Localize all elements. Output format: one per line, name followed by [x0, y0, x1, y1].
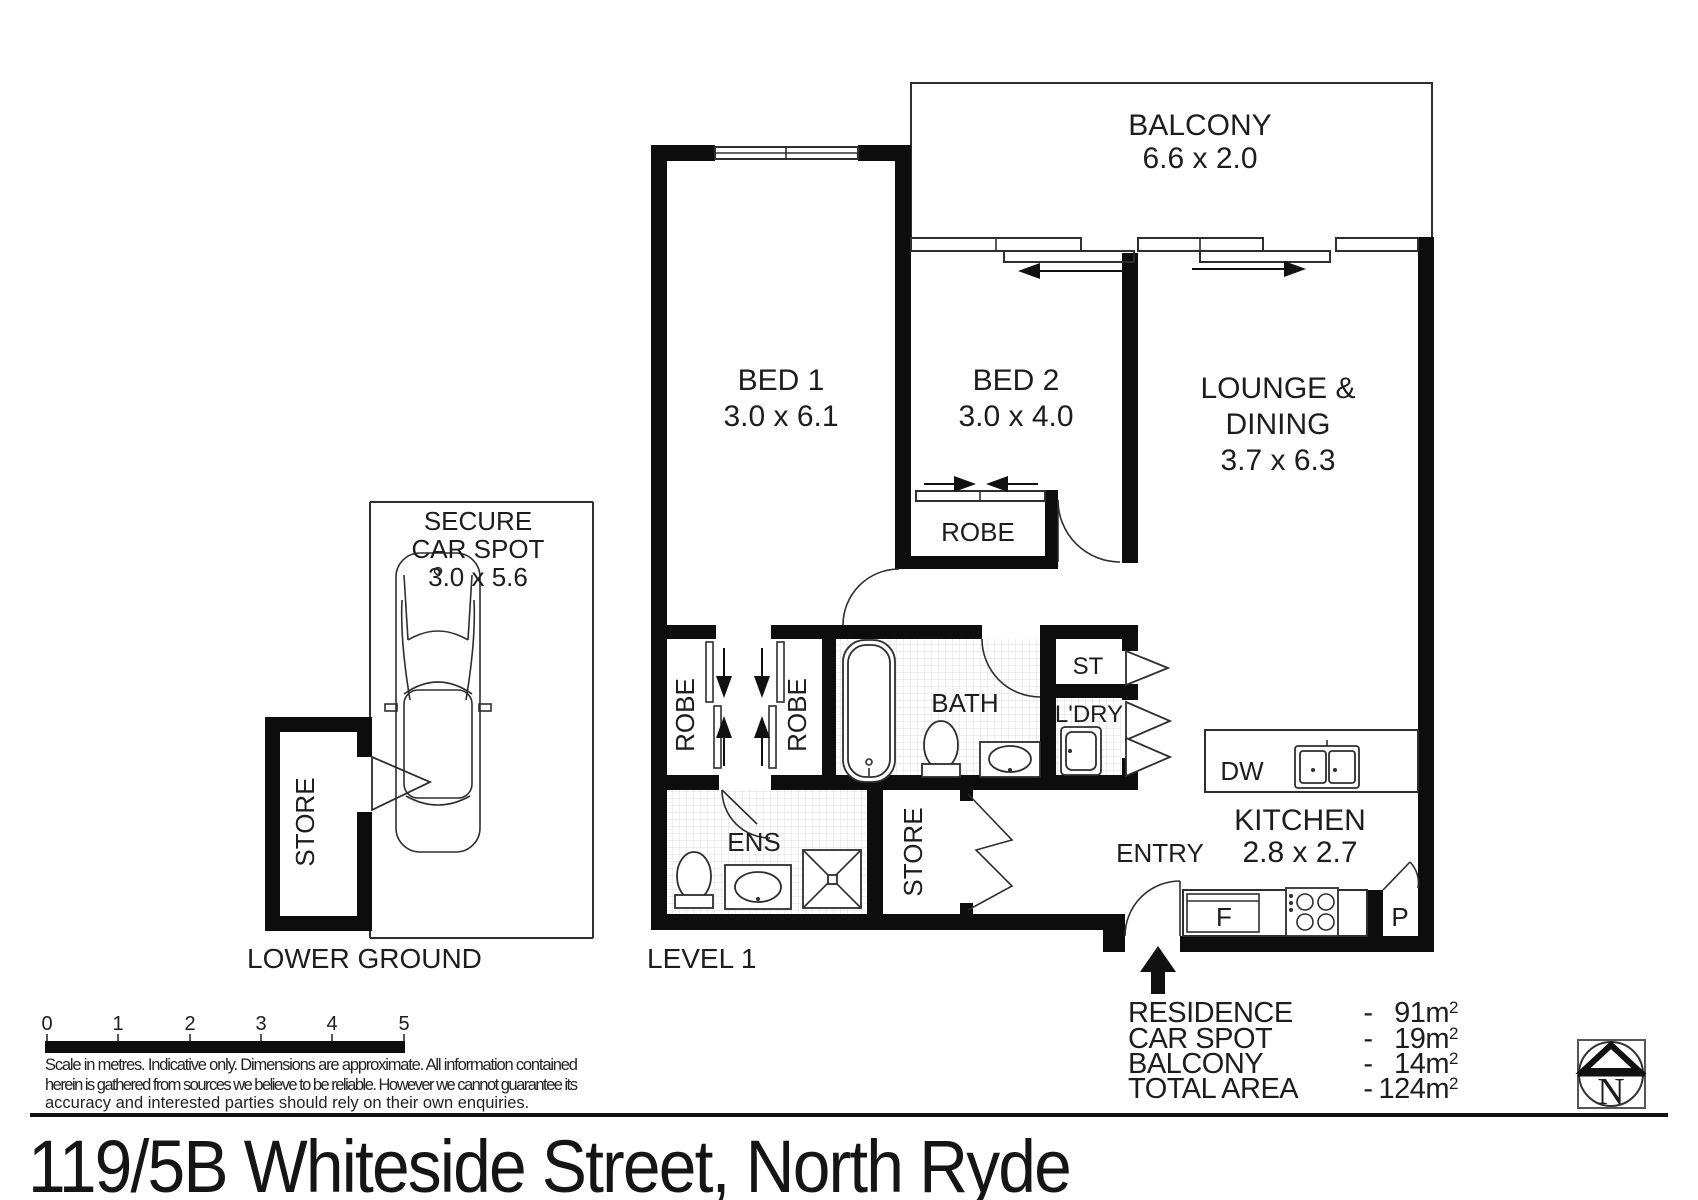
- floorplan-page: BALCONY 6.6 x 2.0 BED 1 3.0 x 6.1 BED 2 …: [0, 0, 1698, 1200]
- entry-label: ENTRY: [1116, 838, 1204, 868]
- door-bed1: [843, 569, 899, 625]
- area-row-label: TOTAL AREA: [1128, 1073, 1299, 1105]
- scale-tick-2: 2: [184, 1013, 195, 1035]
- kitchen-dims: 2.8 x 2.7: [1242, 836, 1357, 869]
- door-bed2: [1058, 500, 1120, 562]
- pantry-label: P: [1391, 902, 1408, 932]
- area-summary: RESIDENCE - 91m2 CAR SPOT - 19m2 BALCONY…: [1128, 997, 1458, 1105]
- level1-caption: LEVEL 1: [647, 943, 756, 974]
- carspot-label-2: CAR SPOT: [412, 534, 545, 564]
- bed2-label: BED 2: [973, 364, 1060, 397]
- bed1-label: BED 1: [738, 364, 825, 397]
- door-pantry: [1383, 862, 1418, 890]
- scale-bar: 0 1 2 3 4 5: [41, 1013, 409, 1053]
- dw-label: DW: [1220, 756, 1264, 786]
- disclaimer: Scale in metres. Indicative only. Dimens…: [45, 1056, 578, 1112]
- scale-tick-marks: [47, 1034, 404, 1041]
- scale-tick-0: 0: [41, 1013, 52, 1035]
- lounge-label-2: DINING: [1226, 408, 1331, 441]
- area-sup: 2: [1449, 1024, 1458, 1043]
- car-icon: [385, 553, 491, 852]
- level1-plan: BALCONY 6.6 x 2.0 BED 1 3.0 x 6.1 BED 2 …: [647, 83, 1434, 994]
- lower-ground-plan: STORE SECURE CAR SPOT 3.0 x 5.6 LOWER GR…: [247, 502, 593, 974]
- fridge-label: F: [1216, 902, 1232, 932]
- area-sup: 2: [1449, 1049, 1458, 1068]
- page-title: 119/5B Whiteside Street, North Ryde: [28, 1125, 1070, 1200]
- area-sup: 2: [1449, 1074, 1458, 1093]
- toilet-ens-icon: [675, 852, 713, 908]
- sliding-door-robe1: [706, 642, 724, 768]
- st-label: ST: [1073, 653, 1104, 680]
- bathtub-icon: [843, 640, 895, 782]
- sliding-door-bed1: [911, 238, 1134, 271]
- floorplan-canvas: BALCONY 6.6 x 2.0 BED 1 3.0 x 6.1 BED 2 …: [0, 0, 1698, 1200]
- north-label: N: [1597, 1071, 1624, 1113]
- robe1-label: ROBE: [670, 678, 700, 752]
- scale-tick-3: 3: [255, 1013, 266, 1035]
- kitchen-sink-icon: [1295, 740, 1359, 788]
- balcony-dims: 6.6 x 2.0: [1142, 142, 1257, 175]
- disclaimer-line3: accuracy and interested parties should r…: [45, 1094, 529, 1112]
- bath-label: BATH: [931, 688, 998, 718]
- disclaimer-line1: Scale in metres. Indicative only. Dimens…: [45, 1056, 578, 1074]
- toilet-bath-icon: [922, 721, 960, 777]
- window-bed1: [715, 147, 858, 159]
- lower-ground-caption: LOWER GROUND: [247, 943, 482, 974]
- footer-rule: [30, 1113, 1668, 1117]
- scale-tick-4: 4: [326, 1013, 337, 1035]
- entry-arrow-icon: [1140, 946, 1176, 994]
- area-row-sep: -: [1363, 1073, 1372, 1105]
- carspot-label-1: SECURE: [424, 506, 532, 536]
- sliding-door-robe-bed2: [916, 484, 1045, 501]
- store-opening-zigzag: [968, 794, 1012, 910]
- lounge-dims: 3.7 x 6.3: [1220, 444, 1335, 477]
- scale-bar-rect: [45, 1041, 405, 1053]
- robe-bed2-label: ROBE: [941, 517, 1015, 547]
- stove-icon: [1286, 888, 1338, 936]
- kitchen-label: KITCHEN: [1234, 804, 1366, 837]
- shower-ens-icon: [803, 850, 861, 908]
- disclaimer-line2: herein is gathered from sources we belie…: [45, 1076, 578, 1094]
- sink-bath-icon: [980, 742, 1040, 777]
- ldry-label: L'DRY: [1055, 701, 1123, 728]
- bed1-dims: 3.0 x 6.1: [723, 400, 838, 433]
- area-value: 124m: [1378, 1073, 1449, 1105]
- robe2-label: ROBE: [782, 678, 812, 752]
- ens-label: ENS: [727, 827, 780, 857]
- door-entry: [1125, 881, 1180, 936]
- sliding-door-lounge: [1138, 238, 1418, 269]
- bed2-dims: 3.0 x 4.0: [958, 400, 1073, 433]
- sink-ldry-icon: [1061, 727, 1101, 775]
- carspot-dims: 3.0 x 5.6: [428, 562, 528, 592]
- balcony-label: BALCONY: [1128, 109, 1271, 142]
- scale-tick-5: 5: [398, 1013, 409, 1035]
- kitchen-counter: [1183, 888, 1367, 936]
- bifold-door-ldry: [1126, 702, 1170, 776]
- store-lower-label: STORE: [290, 777, 320, 866]
- sink-ens-icon: [725, 865, 791, 909]
- bifold-door-st: [1126, 651, 1168, 685]
- scale-tick-1: 1: [112, 1013, 123, 1035]
- store-level1-label: STORE: [898, 807, 928, 896]
- north-compass-icon: N: [1578, 1040, 1645, 1113]
- area-sup: 2: [1449, 998, 1458, 1017]
- sliding-door-robe2: [762, 642, 784, 768]
- lounge-label-1: LOUNGE &: [1200, 372, 1355, 405]
- area-row-value: 124m2: [1378, 1073, 1458, 1105]
